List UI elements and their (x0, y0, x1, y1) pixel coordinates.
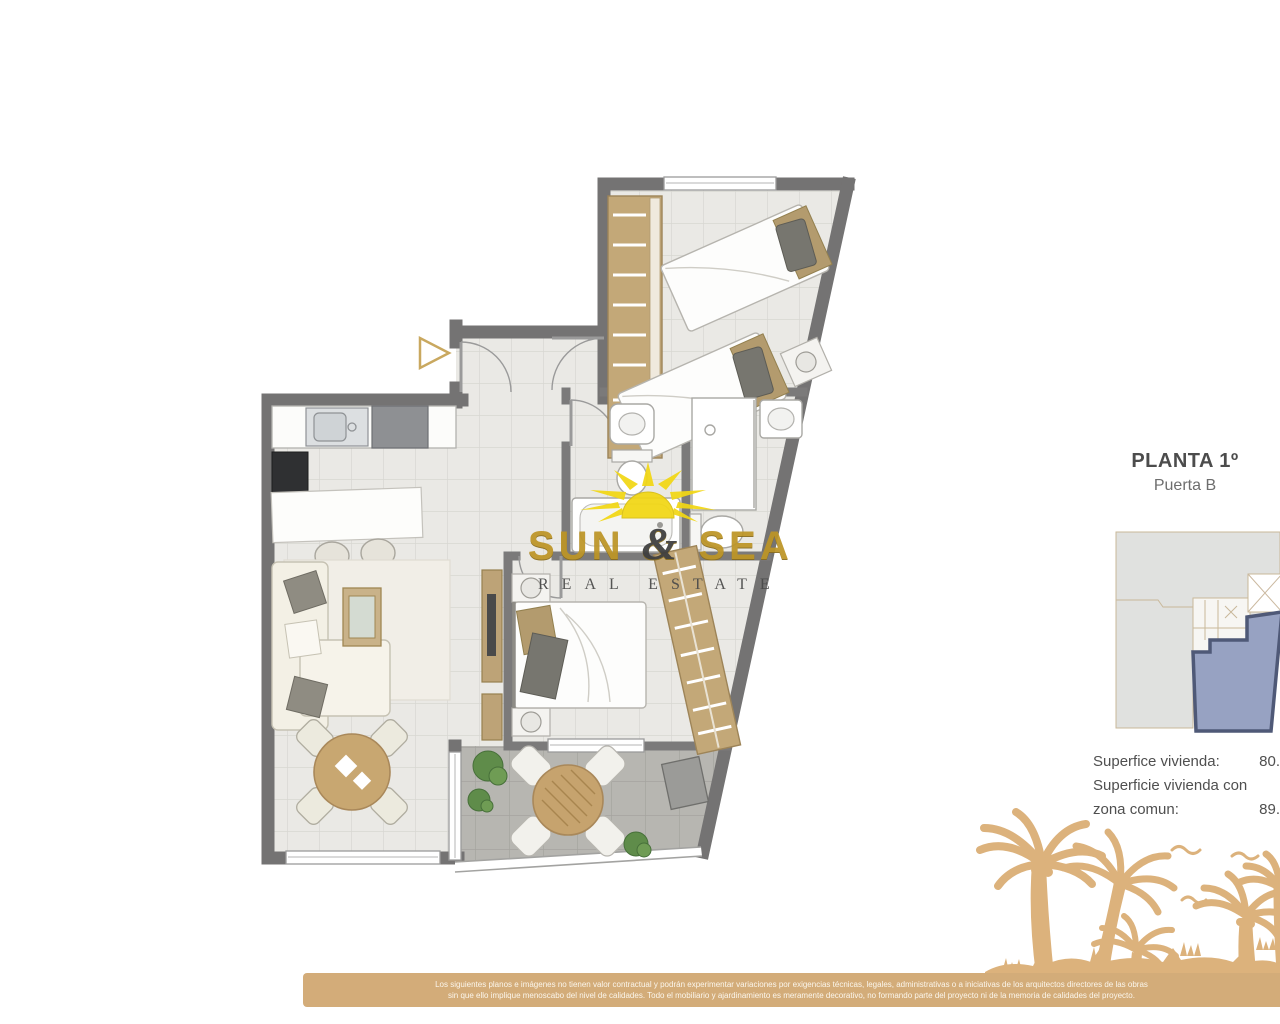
area-row-3: zona comun: 89. (1093, 798, 1280, 822)
floorplan-page: SUN & SEA REAL ESTATE PLANTA 1º Puerta B… (0, 0, 1280, 1024)
sun-and-sea-logo: SUN & SEA REAL ESTATE (528, 462, 768, 594)
area-value-3: 89. (1259, 798, 1280, 822)
floor-title: PLANTA 1º (1100, 450, 1270, 473)
area-label-2: Superficie vivienda con (1093, 774, 1280, 798)
logo-wordmark: SUN & SEA (528, 524, 768, 566)
door-subtitle: Puerta B (1100, 477, 1270, 495)
logo-word-sun: SUN (528, 524, 624, 568)
logo-tagline: REAL ESTATE (528, 576, 768, 594)
key-plan (1116, 532, 1280, 731)
logo-ampersand: & (640, 518, 684, 569)
area-label-1: Superfice vivienda: (1093, 750, 1220, 774)
disclaimer-band: Los siguientes planos e imágenes no tien… (303, 973, 1280, 1007)
entrance-arrow-icon (420, 338, 449, 368)
area-label-3: zona comun: (1093, 798, 1179, 822)
area-row-1: Superfice vivienda: 80. (1093, 750, 1280, 774)
plan-label-block: PLANTA 1º Puerta B (1100, 450, 1270, 495)
disclaimer-line-2: sin que ello implique menoscabo del nive… (303, 990, 1280, 1001)
sun-icon (528, 462, 768, 524)
surface-areas-block: Superfice vivienda: 80. Superficie vivie… (1093, 750, 1280, 822)
disclaimer-line-1: Los siguientes planos e imágenes no tien… (303, 979, 1280, 990)
area-value-1: 80. (1259, 750, 1280, 774)
logo-word-sea: SEA (698, 524, 792, 568)
